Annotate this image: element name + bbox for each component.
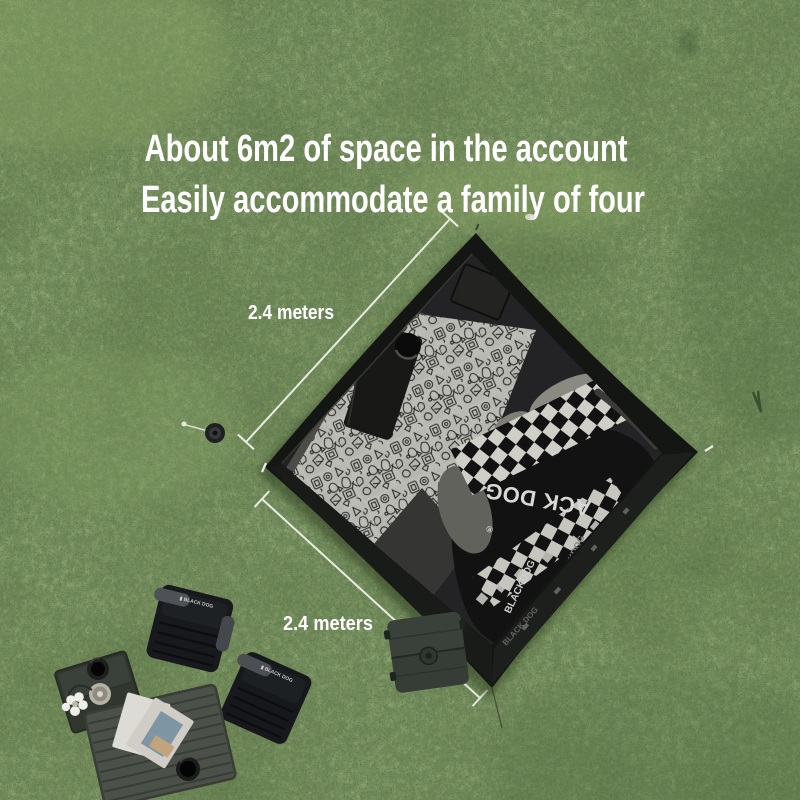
svg-text:2.4 meters: 2.4 meters — [283, 613, 373, 635]
svg-text:About 6m2 of space in the acco: About 6m2 of space in the account — [145, 128, 628, 170]
svg-text:2.4 meters: 2.4 meters — [248, 302, 334, 324]
svg-text:Easily accommodate a family of: Easily accommodate a family of four — [141, 179, 645, 221]
